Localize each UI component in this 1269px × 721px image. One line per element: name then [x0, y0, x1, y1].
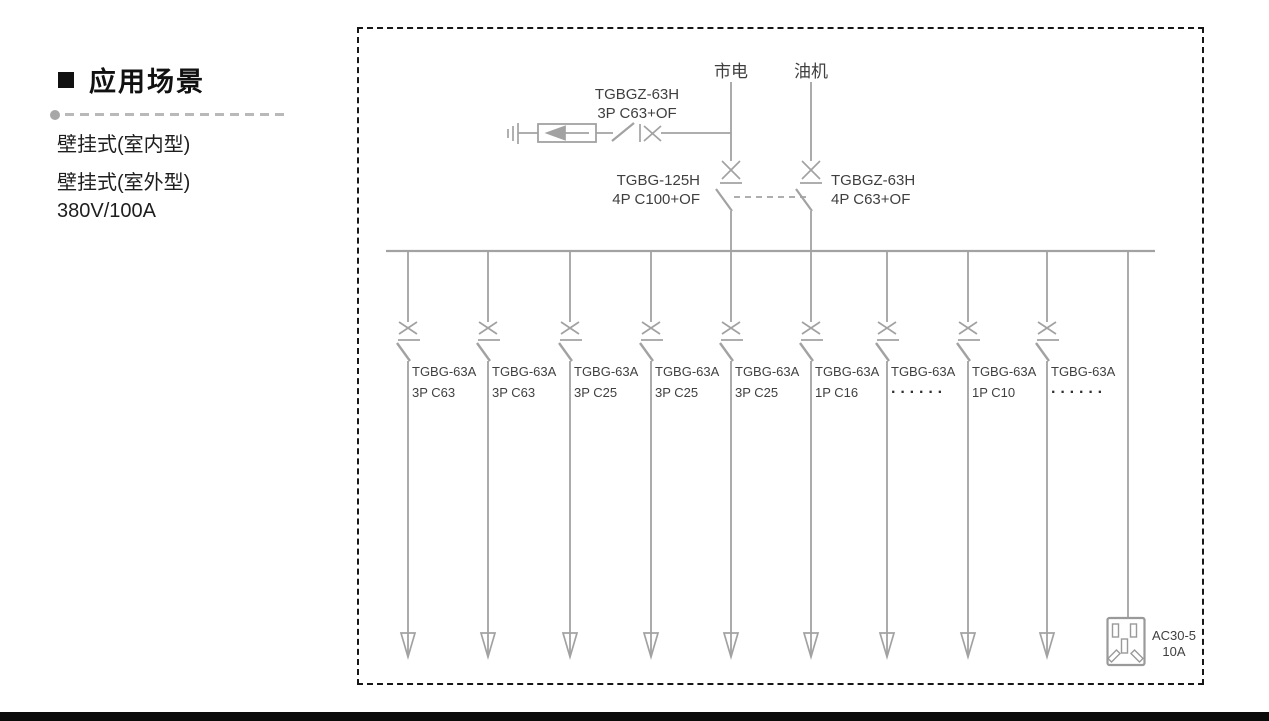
- feeder-label-8: TGBG-63A 1P C10: [972, 364, 1036, 401]
- feeder-label-5: TGBG-63A 3P C25: [735, 364, 799, 401]
- socket-rating: 10A: [1150, 644, 1198, 660]
- ats-generator-model: TGBGZ-63H: [831, 171, 915, 190]
- page: 应用场景 壁挂式(室内型) 壁挂式(室外型) 380V/100A: [0, 0, 1269, 721]
- surge-breaker-spec: 3P C63+OF: [559, 104, 715, 123]
- feeder-label-9: TGBG-63A ······: [1051, 364, 1115, 399]
- ats-generator-spec: 4P C63+OF: [831, 190, 915, 209]
- feeder-spec: ······: [891, 386, 955, 399]
- feeder-model: TGBG-63A: [574, 364, 638, 380]
- feeder-spec: 3P C25: [735, 385, 799, 401]
- ats-generator-label: TGBGZ-63H 4P C63+OF: [831, 171, 915, 209]
- feeder-spec: ······: [1051, 386, 1115, 399]
- feeder-model: TGBG-63A: [891, 364, 955, 380]
- feeder-spec: 3P C63: [492, 385, 556, 401]
- ground-icon: [508, 123, 518, 144]
- feeder-spec: 1P C10: [972, 385, 1036, 401]
- ats-mains-spec: 4P C100+OF: [586, 190, 700, 209]
- spd-icon: [538, 124, 596, 142]
- surge-breaker-label: TGBGZ-63H 3P C63+OF: [559, 85, 715, 123]
- feeder-label-3: TGBG-63A 3P C25: [574, 364, 638, 401]
- feeder-model: TGBG-63A: [735, 364, 799, 380]
- feeder-label-6: TGBG-63A 1P C16: [815, 364, 879, 401]
- feeder-spec: 3P C25: [655, 385, 719, 401]
- feeder-label-4: TGBG-63A 3P C25: [655, 364, 719, 401]
- mains-source-label: 市电: [703, 57, 759, 82]
- load-arrow-icons: [401, 633, 1054, 657]
- feeder-spec: 1P C16: [815, 385, 879, 401]
- ats-mains-model: TGBG-125H: [586, 171, 700, 190]
- socket-label: AC30-5 10A: [1150, 628, 1198, 660]
- feeder-model: TGBG-63A: [655, 364, 719, 380]
- socket-icon: [1108, 618, 1145, 665]
- ats-mains-breaker-symbol: [716, 161, 742, 211]
- feeder-breaker-symbols: [397, 322, 1059, 361]
- feeder-label-1: TGBG-63A 3P C63: [412, 364, 476, 401]
- feeder-model: TGBG-63A: [412, 364, 476, 380]
- feeder-model: TGBG-63A: [815, 364, 879, 380]
- ats-mains-label: TGBG-125H 4P C100+OF: [586, 171, 700, 209]
- feeder-model: TGBG-63A: [1051, 364, 1115, 380]
- ats-generator-breaker-symbol: [796, 161, 822, 211]
- feeder-spec: 3P C25: [574, 385, 638, 401]
- generator-source-label: 油机: [783, 57, 839, 82]
- feeder-label-2: TGBG-63A 3P C63: [492, 364, 556, 401]
- surge-branch: [508, 123, 731, 144]
- bottom-bar: [0, 712, 1269, 721]
- feeder-lines: [408, 251, 1047, 656]
- feeder-label-7: TGBG-63A ······: [891, 364, 955, 399]
- feeder-model: TGBG-63A: [492, 364, 556, 380]
- surge-breaker-symbol: [612, 123, 661, 142]
- surge-breaker-model: TGBGZ-63H: [559, 85, 715, 104]
- feeder-model: TGBG-63A: [972, 364, 1036, 380]
- feeder-spec: 3P C63: [412, 385, 476, 401]
- socket-model: AC30-5: [1150, 628, 1198, 644]
